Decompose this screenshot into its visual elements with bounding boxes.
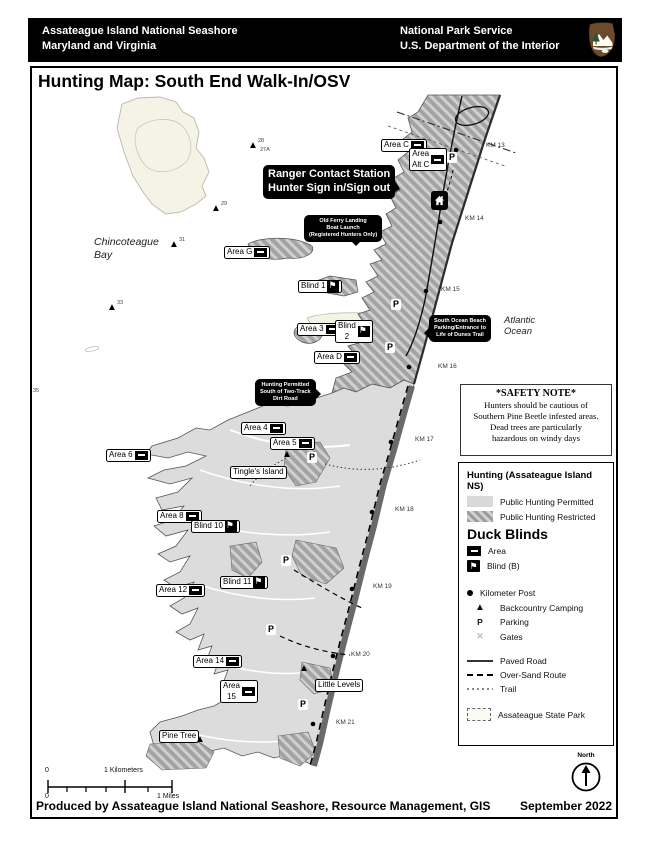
park-name-block: Assateague Island National Seashore Mary…	[42, 24, 238, 54]
scale-zero-km: 0	[45, 767, 49, 774]
credit-line: Produced by Assateague Island National S…	[36, 799, 490, 813]
legend-group: Paved RoadOver-Sand RouteTrail	[467, 656, 605, 694]
swatch-restricted-icon	[467, 511, 493, 522]
safety-note-line: Dead trees are particularly	[465, 422, 607, 433]
header-bar: Assateague Island National Seashore Mary…	[28, 18, 622, 62]
marker-area-icon	[467, 546, 481, 556]
legend-item: Assateague State Park	[467, 708, 605, 721]
legend-label: Assateague State Park	[498, 710, 585, 720]
legend-item: Public Hunting Restricted	[467, 511, 605, 522]
camp-icon: ▲	[467, 602, 493, 613]
legend-label: Paved Road	[500, 656, 547, 666]
agency-block: National Park Service U.S. Department of…	[400, 24, 560, 54]
legend-item: Area	[467, 546, 605, 556]
legend-group: Assateague State Park	[467, 708, 605, 721]
legend-section-title: Duck Blinds	[467, 526, 605, 542]
legend-group: Duck BlindsArea⚑Blind (B)	[467, 526, 605, 572]
department-name: U.S. Department of the Interior	[400, 39, 560, 54]
legend-label: Area	[488, 546, 506, 556]
legend-label: Trail	[500, 684, 516, 694]
legend-item: ✕Gates	[467, 631, 605, 642]
marker-blind-icon: ⚑	[467, 560, 480, 572]
agency-name: National Park Service	[400, 24, 560, 39]
legend-label: Blind (B)	[487, 561, 520, 571]
legend-label: Gates	[500, 632, 523, 642]
legend-group: Hunting (Assateague Island NS)Public Hun…	[467, 470, 605, 522]
over-sand-icon	[467, 674, 493, 677]
legend-box: Hunting (Assateague Island NS)Public Hun…	[458, 462, 614, 746]
nps-arrowhead-logo	[587, 21, 617, 59]
map-date: September 2022	[470, 799, 612, 813]
north-label: North	[560, 752, 612, 759]
legend-section-title: Hunting (Assateague Island NS)	[467, 470, 605, 492]
legend-group: Kilometer Post▲Backcountry CampingPParki…	[467, 588, 605, 642]
north-arrow: North	[560, 752, 612, 804]
scale-km-label: 1 Kilometers	[104, 767, 143, 774]
north-arrow-icon	[568, 759, 604, 795]
swatch-permitted-icon	[467, 496, 493, 507]
safety-note-line: Southern Pine Beetle infested areas.	[465, 411, 607, 422]
legend-item: ▲Backcountry Camping	[467, 602, 605, 613]
legend-body: Hunting (Assateague Island NS)Public Hun…	[467, 470, 605, 721]
km-post-icon	[467, 590, 473, 596]
paved-road-icon	[467, 660, 493, 662]
page-title: Hunting Map: South End Walk-In/OSV	[38, 71, 350, 92]
legend-item: Over-Sand Route	[467, 670, 605, 680]
trail-icon	[467, 688, 493, 690]
legend-item: Paved Road	[467, 656, 605, 666]
legend-label: Kilometer Post	[480, 588, 535, 598]
safety-note-box: *SAFETY NOTE* Hunters should be cautious…	[460, 384, 612, 456]
gates-icon: ✕	[467, 631, 493, 642]
parking-icon: P	[467, 617, 493, 627]
safety-note-line: Hunters should be cautious of	[465, 400, 607, 411]
legend-label: Backcountry Camping	[500, 603, 583, 613]
legend-item: Kilometer Post	[467, 588, 605, 598]
legend-label: Over-Sand Route	[500, 670, 566, 680]
park-name: Assateague Island National Seashore	[42, 24, 238, 39]
state-park-icon	[467, 708, 491, 721]
legend-item: PParking	[467, 617, 605, 627]
legend-item: ⚑Blind (B)	[467, 560, 605, 572]
safety-note-title: *SAFETY NOTE*	[465, 388, 607, 399]
park-states: Maryland and Virginia	[42, 39, 238, 54]
legend-label: Public Hunting Restricted	[500, 512, 595, 522]
safety-note-line: hazardous on windy days	[465, 433, 607, 444]
hunting-map-page: Assateague Island National Seashore Mary…	[0, 0, 650, 841]
legend-label: Public Hunting Permitted	[500, 497, 594, 507]
legend-item: Public Hunting Permitted	[467, 496, 605, 507]
legend-item: Trail	[467, 684, 605, 694]
legend-label: Parking	[500, 617, 529, 627]
